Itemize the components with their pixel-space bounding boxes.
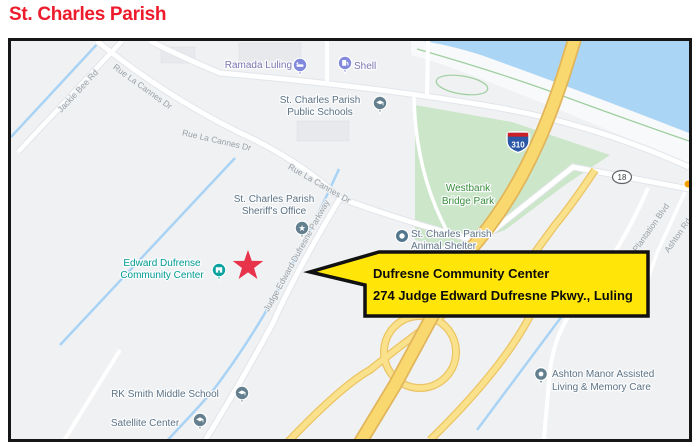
callout-address: 274 Judge Edward Dufresne Pkwy., Luling xyxy=(373,288,633,303)
sheriff-office-label-line2[interactable]: Sheriff's Office xyxy=(242,206,307,217)
animal-shelter-pin[interactable] xyxy=(395,229,408,242)
animal-icon xyxy=(399,233,404,238)
badge-icon: ★ xyxy=(298,223,306,233)
building-footprint xyxy=(297,121,349,141)
page-title: St. Charles Parish xyxy=(9,4,166,26)
rk-smith-label[interactable]: RK Smith Middle School xyxy=(111,389,219,400)
map-svg: 310 18 Westbank Bridge Park Ramada Lulin… xyxy=(11,41,689,439)
ashton-manor-label-line1[interactable]: Ashton Manor Assisted xyxy=(552,369,654,380)
community-center-label-line1[interactable]: Edward Dufrense xyxy=(123,258,201,269)
orange-poi-dot xyxy=(684,180,689,188)
road-minor xyxy=(427,41,428,96)
place-dot-icon xyxy=(539,372,544,377)
park-label-line2: Bridge Park xyxy=(442,196,495,207)
route-18-number: 18 xyxy=(618,173,627,182)
route-18-shield: 18 xyxy=(613,171,632,184)
ashton-manor-label-line2[interactable]: Living & Memory Care xyxy=(552,382,651,393)
shell-label[interactable]: Shell xyxy=(354,61,376,72)
public-schools-label-line1[interactable]: St. Charles Parish xyxy=(280,95,361,106)
ramada-luling-label[interactable]: Ramada Luling xyxy=(225,60,292,71)
i310-shield-number: 310 xyxy=(511,141,525,150)
map-canvas[interactable]: 310 18 Westbank Bridge Park Ramada Lulin… xyxy=(8,38,692,442)
park-label-line1: Westbank xyxy=(446,183,491,194)
building-icon xyxy=(216,267,222,272)
public-schools-label-line2[interactable]: Public Schools xyxy=(287,107,353,118)
community-center-label-line2[interactable]: Community Center xyxy=(120,270,204,281)
callout-name: Dufresne Community Center xyxy=(373,266,549,281)
animal-shelter-label-line1[interactable]: St. Charles Parish xyxy=(411,229,492,240)
sheriff-office-label-line1[interactable]: St. Charles Parish xyxy=(234,194,315,205)
satellite-center-label[interactable]: Satellite Center xyxy=(111,418,180,429)
